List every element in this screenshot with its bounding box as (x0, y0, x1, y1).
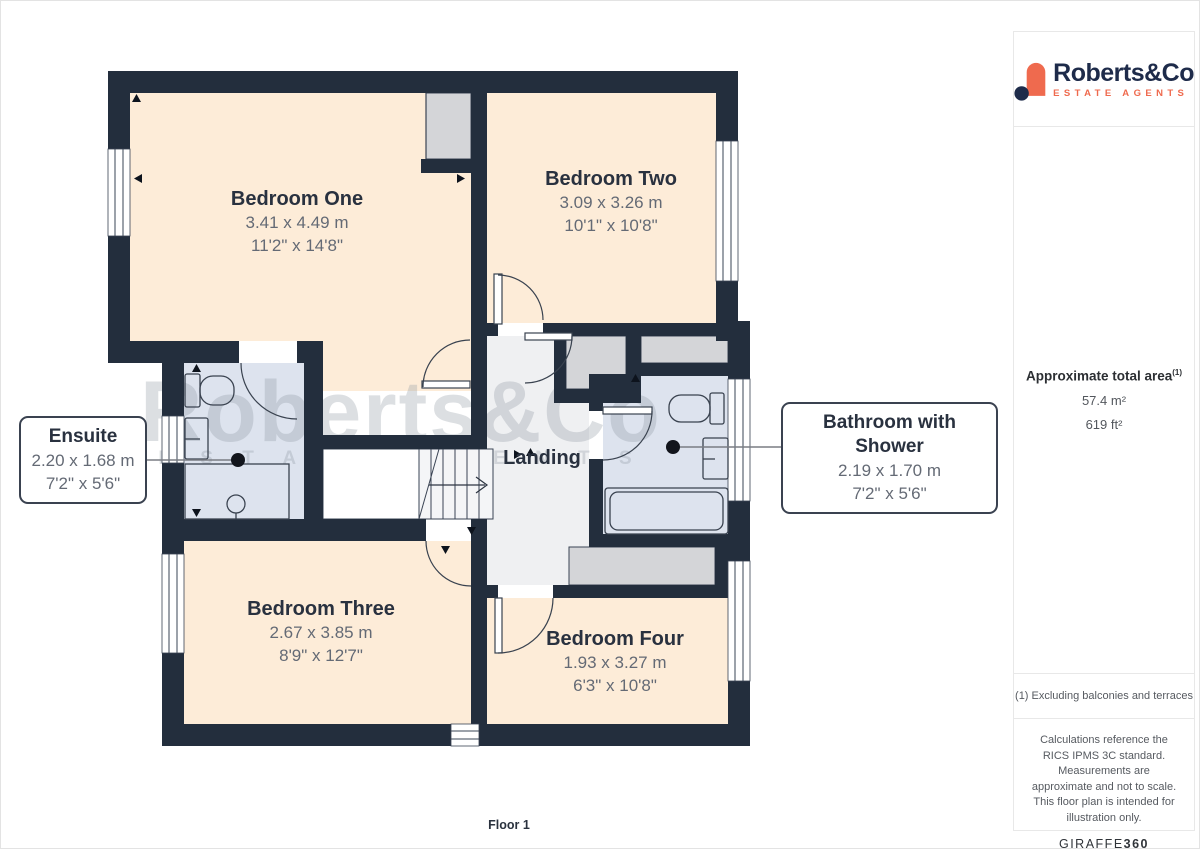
window (716, 141, 738, 281)
room-dim-metric: 1.93 x 3.27 m (546, 651, 684, 674)
room-dim-imperial: 8'9" x 12'7" (247, 644, 395, 667)
window (728, 561, 750, 681)
callout-name: Ensuite (27, 425, 139, 449)
room-dim-metric: 2.67 x 3.85 m (247, 621, 395, 644)
total-area-title: Approximate total area(1) (1026, 368, 1182, 384)
closet-bedroom-four (569, 547, 715, 585)
provider-suffix: 360 (1124, 837, 1149, 849)
window (162, 554, 184, 653)
bedroom-one-door-leaf (422, 381, 470, 388)
total-area-metric: 57.4 m² (1082, 393, 1126, 408)
total-area-imperial: 619 ft² (1086, 417, 1123, 432)
brand-logo-text: Roberts&Co ESTATE AGENTS (1053, 60, 1194, 99)
ensuite-leader-dot (231, 453, 245, 467)
callout-name: Bathroom with Shower (789, 411, 990, 459)
brand-logo-icon (1014, 54, 1046, 104)
room-dim-metric: 3.09 x 3.26 m (545, 191, 677, 214)
closet-right-strip (641, 336, 728, 363)
logo-card: Roberts&Co ESTATE AGENTS (1013, 31, 1195, 127)
legal-text: Calculations reference the RICS IPMS 3C … (1027, 733, 1181, 826)
footnote-text: (1) Excluding balconies and terraces (1015, 690, 1193, 702)
total-area-title-text: Approximate total area (1026, 369, 1172, 384)
floor-title: Floor 1 (469, 818, 549, 832)
bathroom-door-leaf (603, 407, 652, 414)
room-label-bedroom-three: Bedroom Three 2.67 x 3.85 m 8'9" x 12'7" (247, 597, 395, 667)
total-area-card: Approximate total area(1) 57.4 m² 619 ft… (1013, 126, 1195, 674)
window (162, 416, 184, 463)
staircase (323, 449, 493, 519)
brand-tagline: ESTATE AGENTS (1053, 88, 1194, 99)
room-label-bedroom-two: Bedroom Two 3.09 x 3.26 m 10'1" x 10'8" (545, 167, 677, 237)
callout-ensuite: Ensuite 2.20 x 1.68 m 7'2" x 5'6" (19, 416, 147, 504)
room-name: Bedroom Two (545, 167, 677, 191)
total-area-superscript: (1) (1172, 368, 1182, 377)
room-label-bedroom-four: Bedroom Four 1.93 x 3.27 m 6'3" x 10'8" (546, 627, 684, 697)
room-dim-imperial: 10'1" x 10'8" (545, 214, 677, 237)
floorplan-page: Roberts&Co E S T A T E A G E N T S (0, 0, 1200, 849)
window (108, 149, 130, 236)
room-label-bedroom-one: Bedroom One 3.41 x 4.49 m 11'2" x 14'8" (231, 187, 363, 257)
brand-name: Roberts&Co (1053, 60, 1194, 86)
room-label-landing: Landing (503, 446, 581, 470)
room-name: Bedroom One (231, 187, 363, 211)
callout-dim-imperial: 7'2" x 5'6" (789, 482, 990, 505)
room-name: Bedroom Three (247, 597, 395, 621)
provider-logo: GIRAFFE360 (1027, 837, 1181, 849)
provider-name: GIRAFFE (1059, 837, 1124, 849)
room-dim-imperial: 6'3" x 10'8" (546, 674, 684, 697)
bathroom-leader-dot (666, 440, 680, 454)
legal-card: Calculations reference the RICS IPMS 3C … (1013, 718, 1195, 831)
callout-dim-metric: 2.20 x 1.68 m (27, 449, 139, 472)
window (728, 379, 750, 501)
bedroom-two-door-leaf (494, 274, 502, 324)
room-dim-metric: 3.41 x 4.49 m (231, 211, 363, 234)
footnote-card: (1) Excluding balconies and terraces (1013, 673, 1195, 719)
callout-dim-imperial: 7'2" x 5'6" (27, 472, 139, 495)
bedroom-four-door-leaf (495, 598, 502, 653)
closet-door-leaf (525, 333, 572, 340)
room-dim-imperial: 11'2" x 14'8" (231, 234, 363, 257)
closet-top (426, 93, 471, 159)
callout-bathroom: Bathroom with Shower 2.19 x 1.70 m 7'2" … (781, 402, 998, 514)
room-name: Bedroom Four (546, 627, 684, 651)
window (451, 724, 479, 746)
room-name: Landing (503, 446, 581, 470)
callout-dim-metric: 2.19 x 1.70 m (789, 459, 990, 482)
